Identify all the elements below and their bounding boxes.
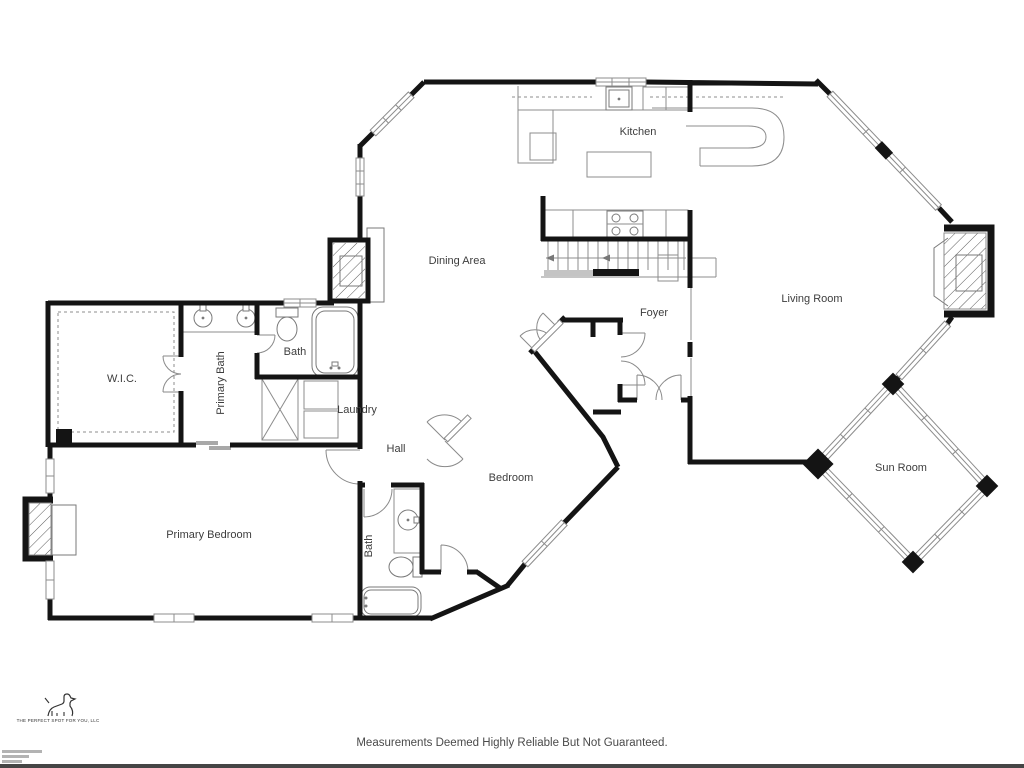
window [826,91,942,211]
floor-plan-page: Kitchen Dining Area Living Room Foyer W.… [0,0,1024,768]
window [522,520,567,567]
bottom-edge-bar [0,764,1024,768]
window [815,381,896,467]
room-label-foyer: Foyer [640,307,668,319]
room-label-laundry: Laundry [337,404,377,416]
dining-chimney [330,228,384,302]
pocket-door [196,441,231,450]
primary-bedroom-fireplace [26,500,76,558]
fine-print [2,750,42,763]
window [312,614,353,622]
room-label-primary-bath: Primary Bath [215,351,227,415]
window [154,614,194,622]
stove-counter [545,210,688,238]
window [46,561,54,599]
room-label-bedroom: Bedroom [489,472,534,484]
branding: THE PERFECT SPOT FOR YOU, LLC [2,694,100,763]
lower-bath-tub [361,587,421,617]
shower [262,379,298,440]
window [910,483,990,564]
window [896,321,950,380]
room-label-bath-upper: Bath [284,346,307,358]
logo-tagline: THE PERFECT SPOT FOR YOU, LLC [17,718,100,723]
window [284,299,316,307]
primary-bath-vanity [182,305,257,332]
lower-bath-vanity [394,489,422,553]
room-label-bath-lower: Bath [363,535,375,558]
window [356,158,364,196]
room-label-primary-bedroom: Primary Bedroom [166,529,252,541]
kitchen-island [587,152,651,177]
upper-bath-toilet [276,308,298,341]
breakfast-bar [652,108,784,166]
room-label-hall: Hall [387,443,406,455]
window [596,78,646,86]
dog-logo-icon [45,694,75,716]
room-label-living-room: Living Room [781,293,842,305]
washer-dryer [304,379,338,438]
window [46,459,54,493]
upper-bath-tub [312,307,358,377]
window [370,92,414,136]
floor-plan-drawing: Kitchen Dining Area Living Room Foyer W.… [0,0,1024,768]
living-room-fireplace [934,228,991,314]
room-label-kitchen: Kitchen [620,126,657,138]
room-labels: Kitchen Dining Area Living Room Foyer W.… [107,126,927,557]
lower-bath-toilet [389,557,422,577]
bedroom-entry-opening [531,320,563,352]
disclaimer-text: Measurements Deemed Highly Reliable But … [356,737,667,749]
room-label-wic: W.I.C. [107,373,137,385]
window [815,461,915,564]
refrigerator [530,133,556,160]
room-label-sun-room: Sun Room [875,462,927,474]
room-label-dining-area: Dining Area [429,255,487,267]
